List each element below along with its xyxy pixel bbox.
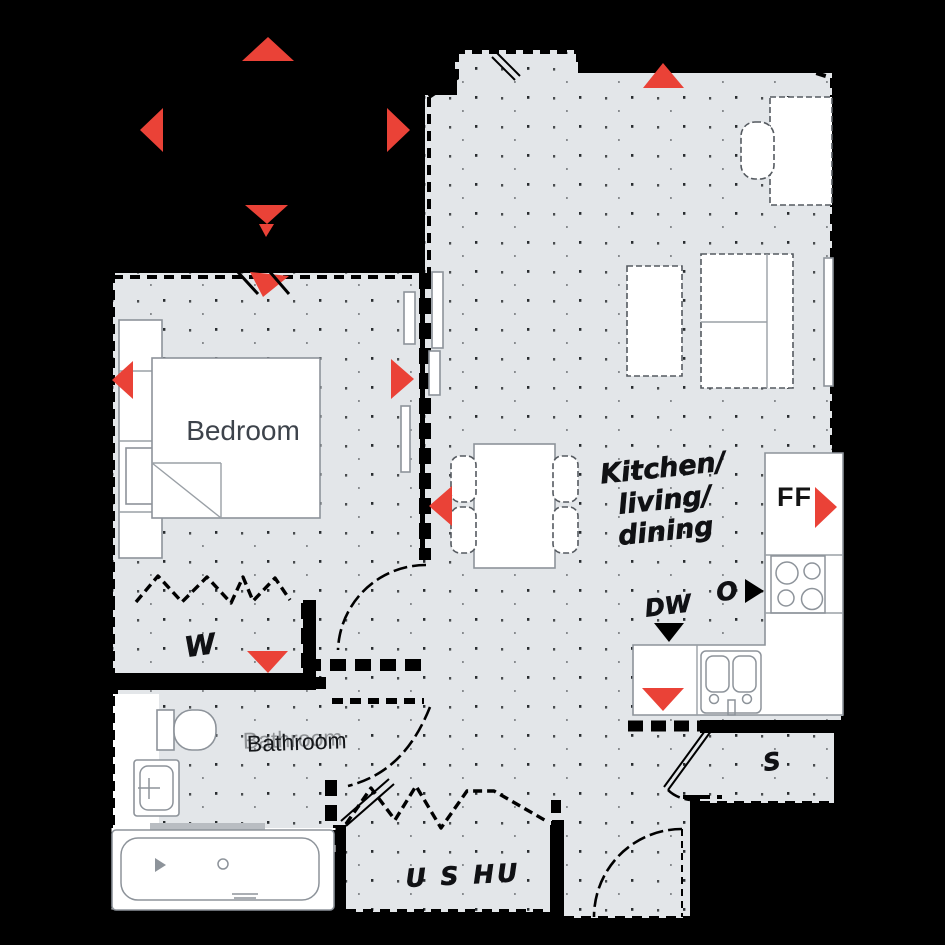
toilet-tank <box>157 710 174 750</box>
living-radiator-bottom <box>429 351 440 395</box>
armchair <box>627 266 682 376</box>
desk-chair <box>741 122 774 179</box>
living-radiator-top <box>432 272 443 348</box>
oven-label: O <box>715 576 739 607</box>
floor-plan-page: Bedroom Bathroom Bathroom Kitchen/ livin… <box>0 0 945 945</box>
entry-floor <box>563 790 690 918</box>
bedroom-radiator-bottom <box>401 406 410 472</box>
bathroom-label: Bathroom <box>246 727 347 756</box>
dining-chair-3 <box>553 456 578 502</box>
dishwasher-label: DW <box>643 589 694 623</box>
fridge-freezer-label: FF <box>777 482 812 512</box>
dining-chair-2 <box>451 507 476 553</box>
floor-plan: Bedroom Bathroom Bathroom Kitchen/ livin… <box>0 0 945 945</box>
utility-label: U S HU <box>405 858 521 893</box>
sofa <box>701 254 793 388</box>
dining-table <box>474 444 555 568</box>
toilet-bowl <box>174 710 216 750</box>
desk <box>770 97 832 205</box>
bathtub <box>112 830 334 910</box>
wardrobe-label: W <box>182 627 218 664</box>
tub-top-shading <box>150 823 265 830</box>
living-window-bar <box>824 258 833 386</box>
dining-chair-1 <box>451 456 476 502</box>
bedroom-radiator-top <box>404 292 415 344</box>
dining-chair-4 <box>553 507 578 553</box>
bedroom-label: Bedroom <box>186 415 300 446</box>
